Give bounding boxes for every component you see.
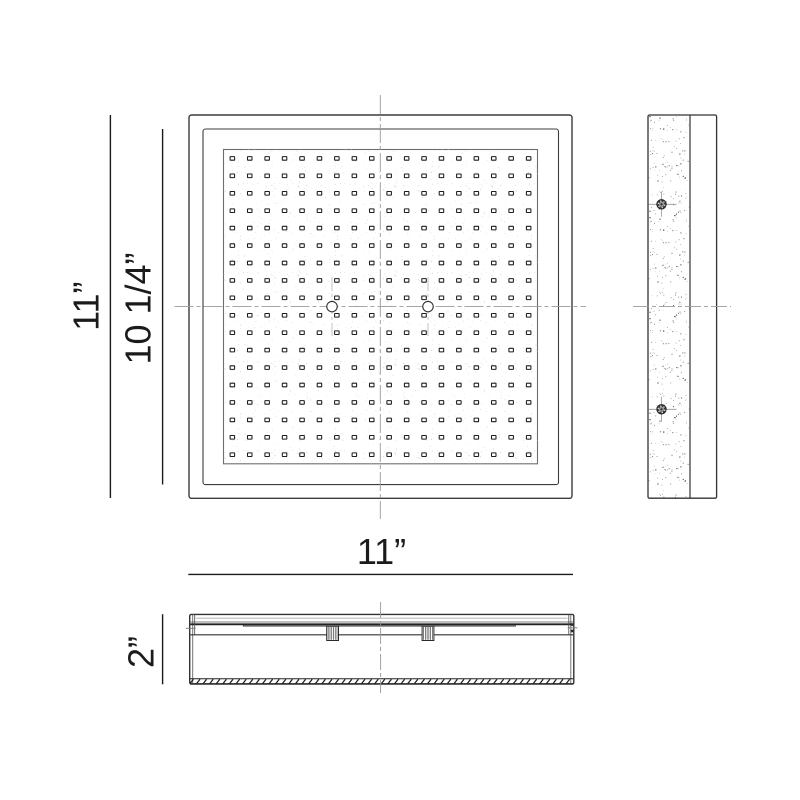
svg-text:11”: 11” (357, 531, 406, 572)
svg-text:10 1/4”: 10 1/4” (118, 252, 159, 364)
svg-text:2”: 2” (121, 636, 162, 668)
svg-text:11”: 11” (66, 282, 107, 331)
